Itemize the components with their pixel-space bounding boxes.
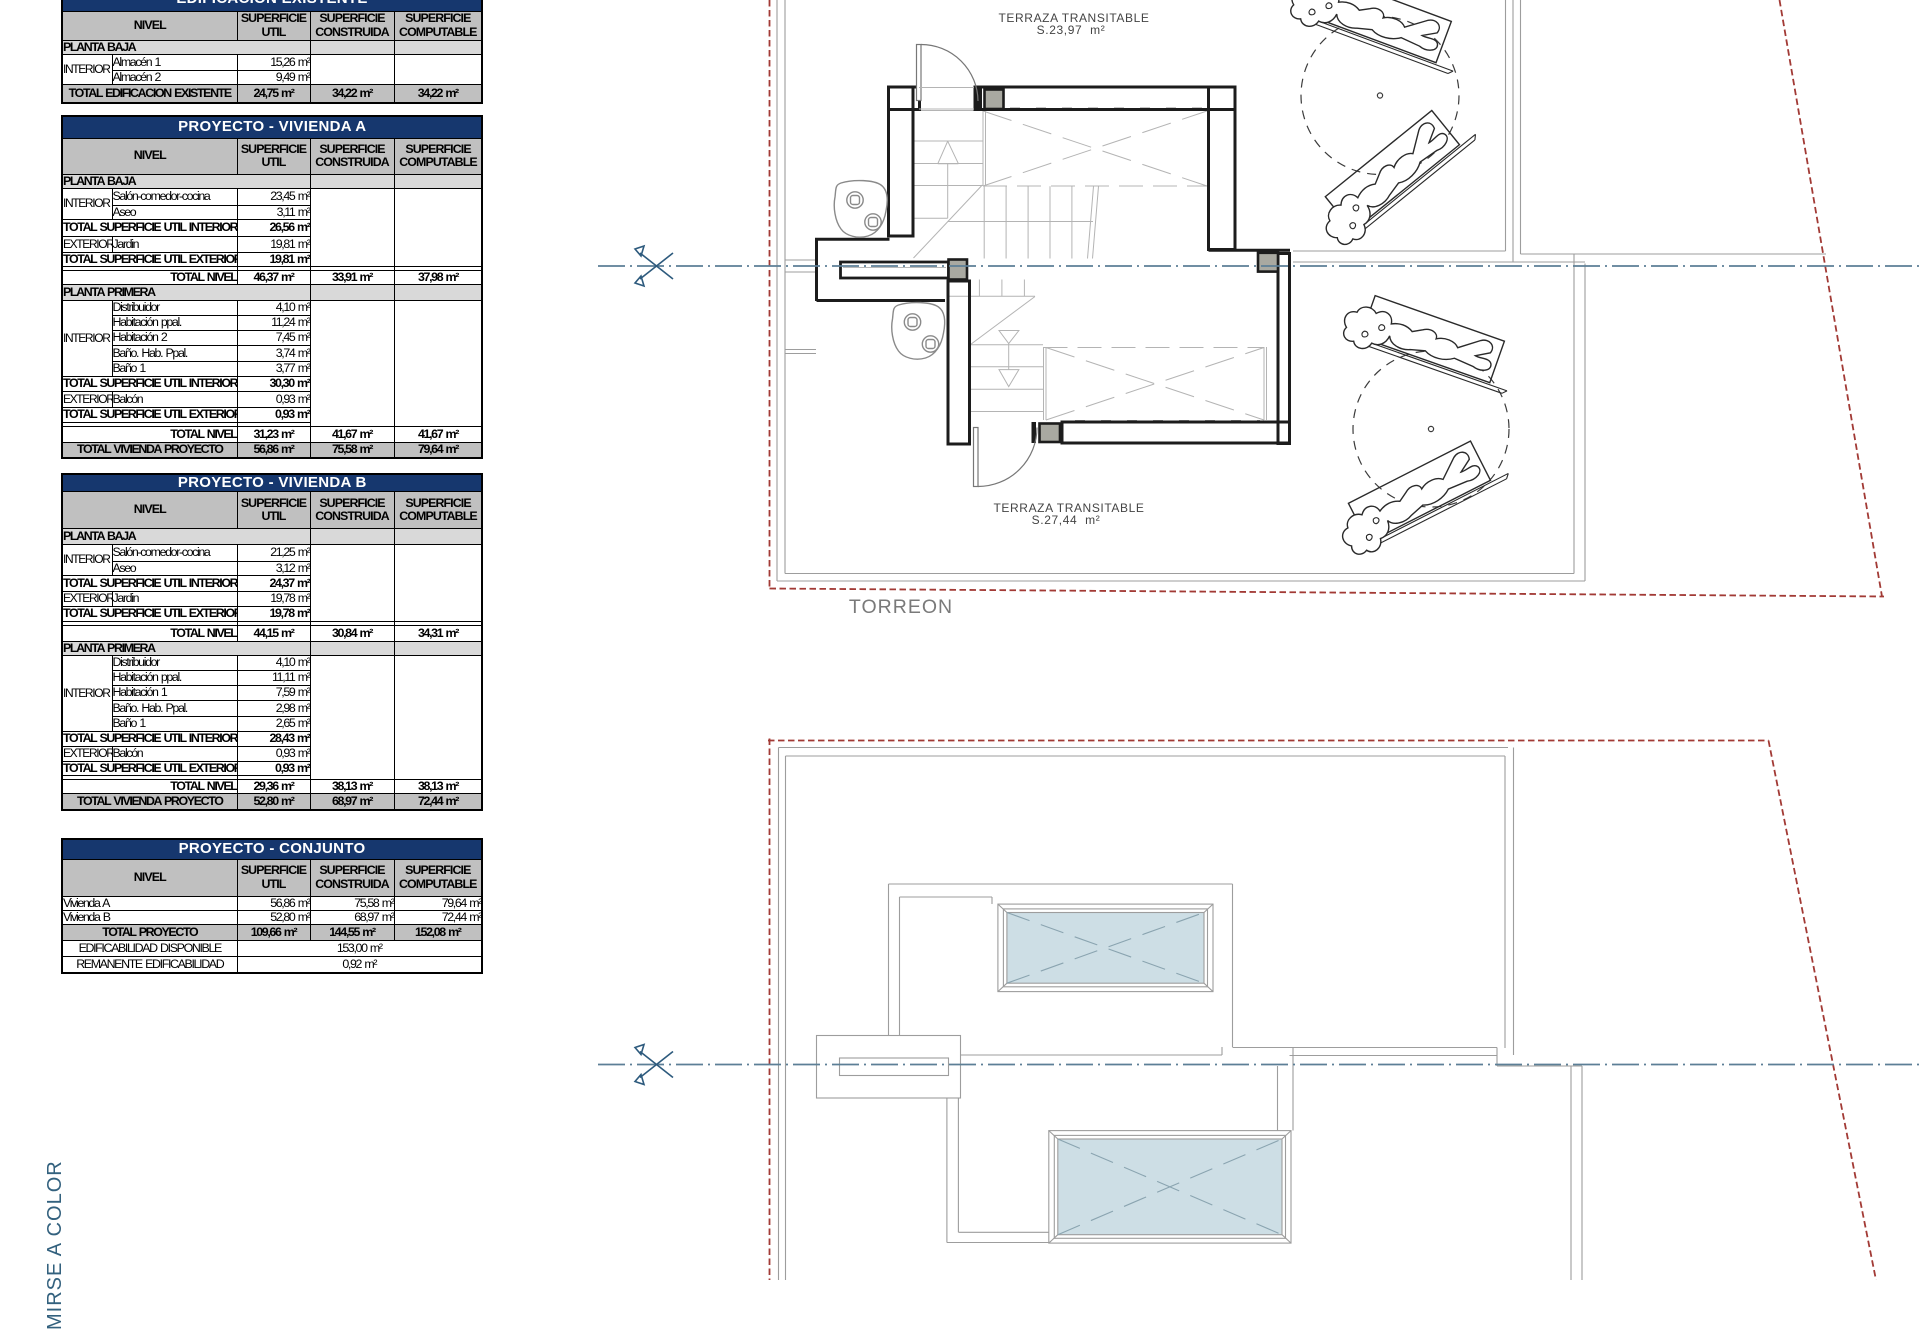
svg-text:S.27,44 m²: S.27,44 m²: [1032, 513, 1101, 527]
svg-text:S.23,97 m²: S.23,97 m²: [1037, 23, 1106, 37]
svg-text:TORREON: TORREON: [849, 596, 953, 618]
